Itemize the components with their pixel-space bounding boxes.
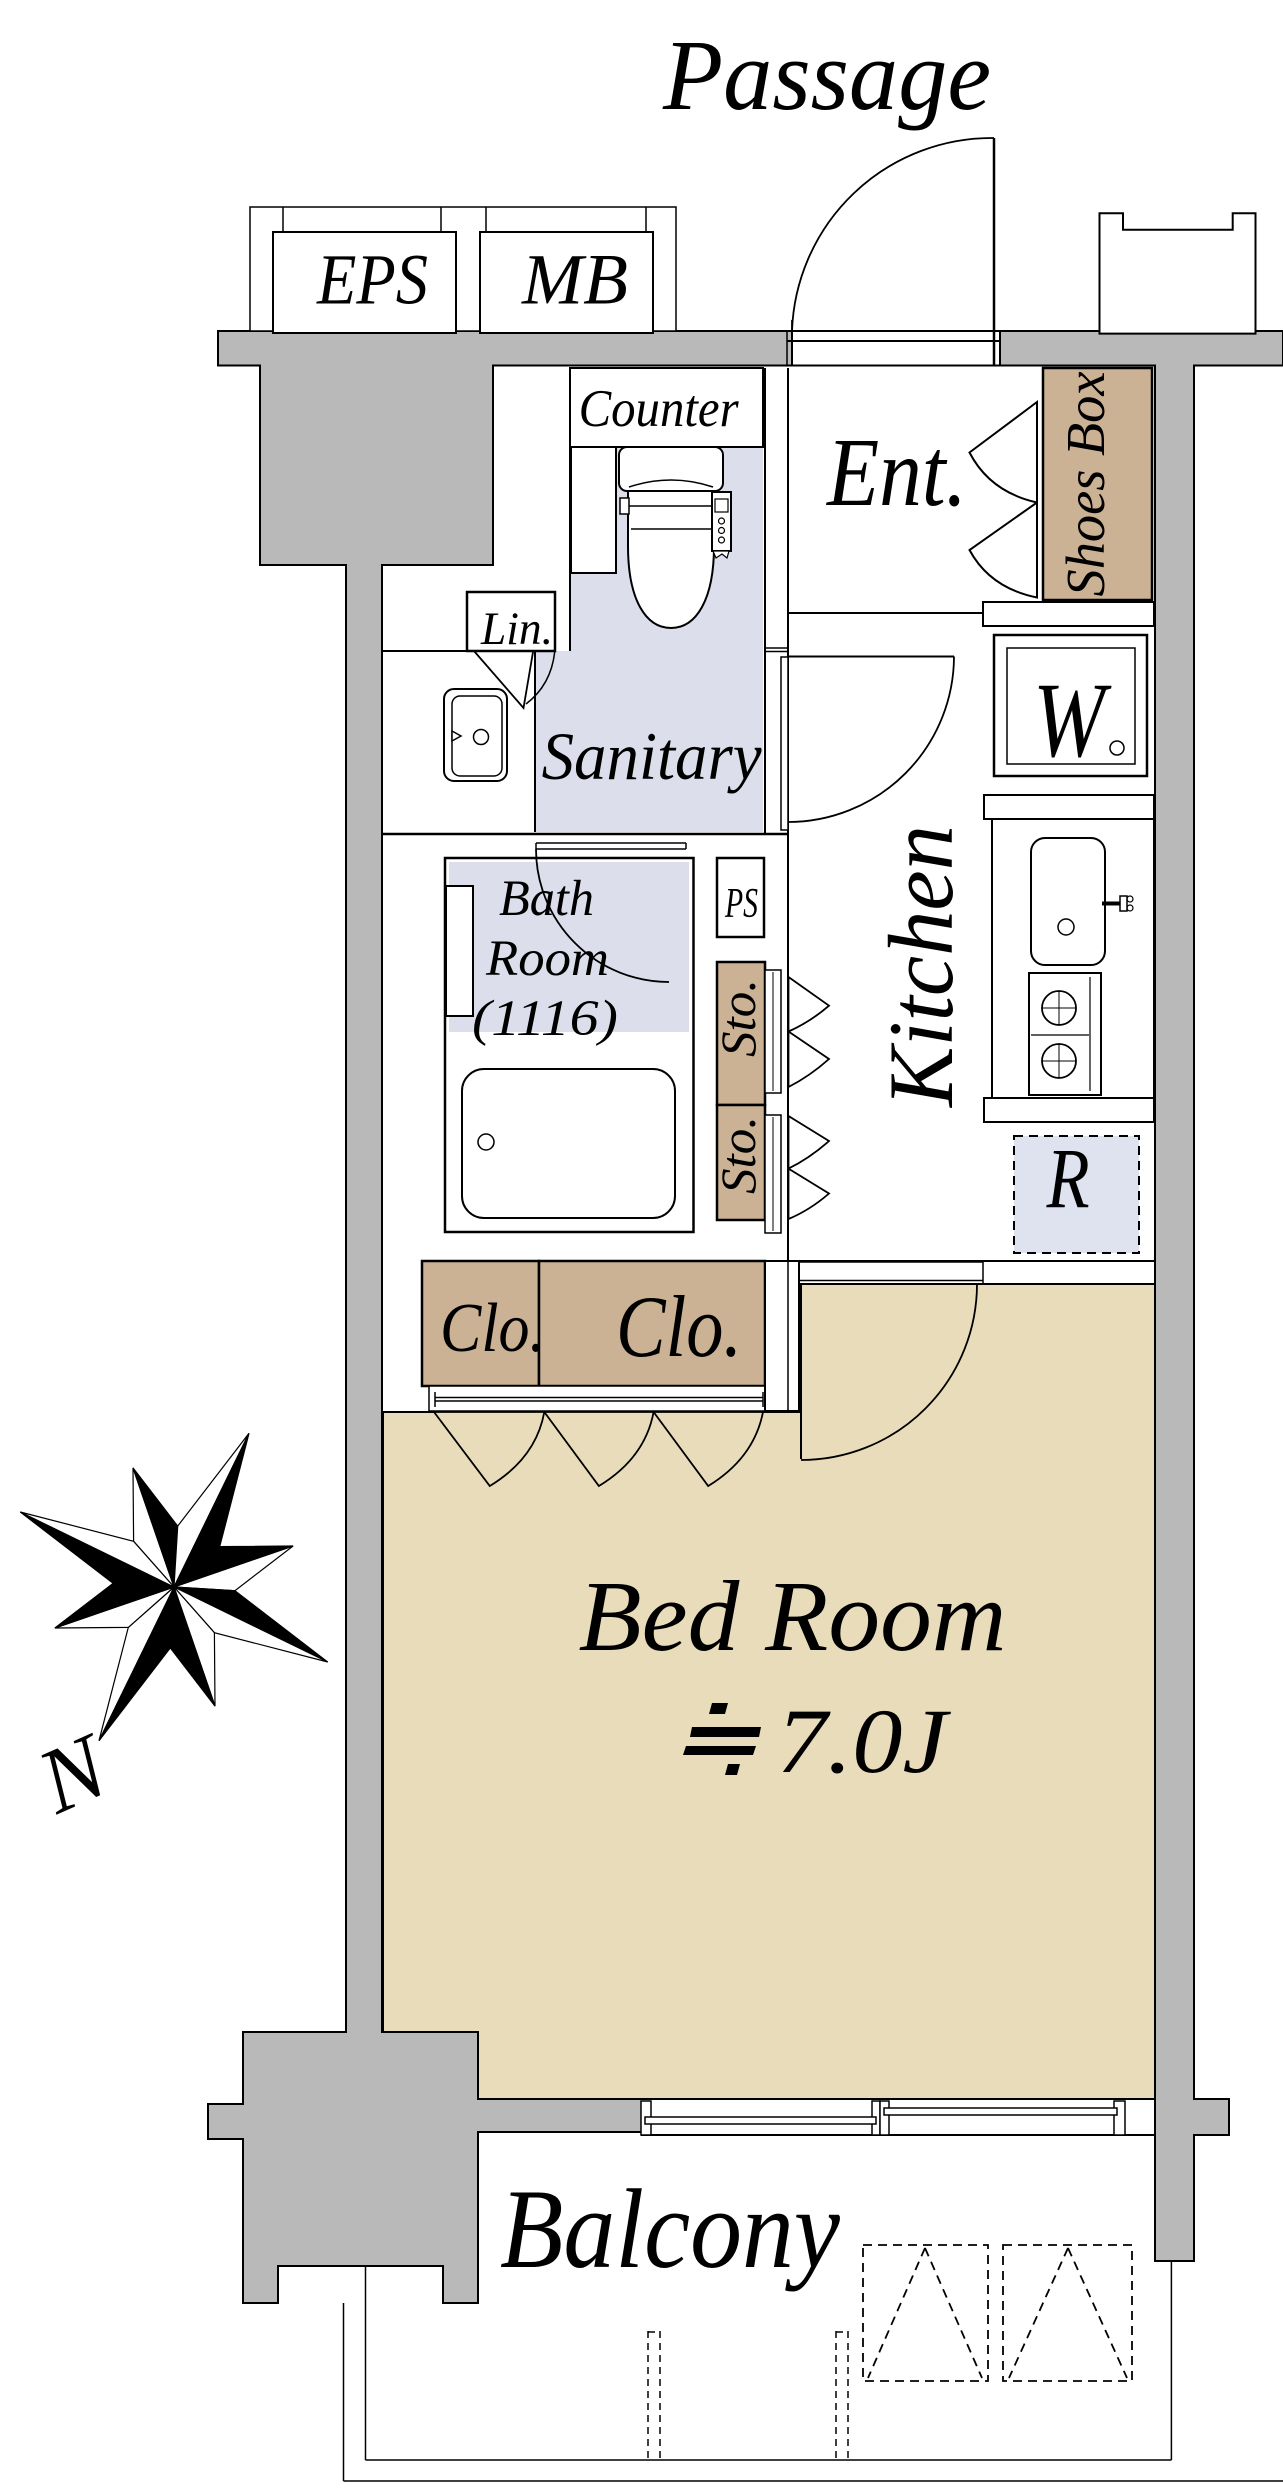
svg-text:Bath: Bath bbox=[499, 871, 594, 927]
svg-text:R: R bbox=[1046, 1130, 1090, 1226]
svg-text:Kitchen: Kitchen bbox=[870, 825, 972, 1109]
svg-text:Clo.: Clo. bbox=[616, 1279, 742, 1376]
svg-text:7.0J: 7.0J bbox=[777, 1690, 952, 1792]
svg-text:Room: Room bbox=[485, 931, 609, 987]
svg-text:Balcony: Balcony bbox=[500, 2167, 841, 2292]
svg-text:W: W bbox=[1033, 662, 1112, 780]
svg-text:Bed Room: Bed Room bbox=[579, 1560, 1007, 1672]
svg-text:EPS: EPS bbox=[316, 240, 428, 320]
svg-text:PS: PS bbox=[724, 881, 758, 927]
svg-text:Sto.: Sto. bbox=[710, 1116, 766, 1194]
svg-text:MB: MB bbox=[521, 240, 628, 320]
svg-text:Clo.: Clo. bbox=[440, 1290, 545, 1367]
svg-text:(1116): (1116) bbox=[472, 991, 618, 1047]
svg-text:Counter: Counter bbox=[579, 380, 739, 438]
svg-text:Shoes Box: Shoes Box bbox=[1055, 371, 1116, 597]
svg-text:Passage: Passage bbox=[662, 19, 991, 131]
svg-text:Sanitary: Sanitary bbox=[542, 718, 763, 794]
svg-text:Lin.: Lin. bbox=[480, 603, 553, 655]
svg-text:Ent.: Ent. bbox=[825, 419, 967, 527]
svg-text:Sto.: Sto. bbox=[710, 979, 766, 1057]
